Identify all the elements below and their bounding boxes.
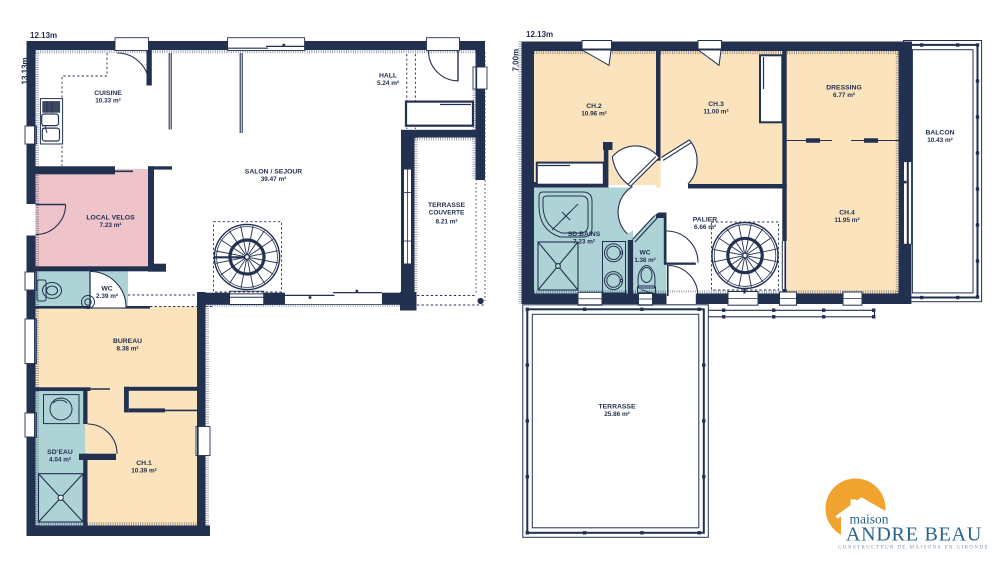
svg-text:ANDRE BEAU: ANDRE BEAU: [846, 524, 982, 546]
svg-text:PALIER: PALIER: [693, 217, 718, 224]
svg-text:7.00m: 7.00m: [512, 49, 521, 72]
svg-text:COUVERTE: COUVERTE: [429, 210, 465, 217]
svg-text:CONSTRUCTEUR DE MAISONS EN GIR: CONSTRUCTEUR DE MAISONS EN GIRONDE: [838, 545, 989, 551]
svg-text:11.95 m²: 11.95 m²: [834, 217, 859, 224]
svg-text:WC: WC: [101, 286, 112, 293]
svg-text:4.04 m²: 4.04 m²: [49, 457, 71, 464]
svg-text:12.13m: 12.13m: [30, 31, 57, 40]
svg-text:7.23 m²: 7.23 m²: [99, 222, 121, 229]
svg-text:DRESSING: DRESSING: [826, 85, 862, 92]
svg-text:CH.3: CH.3: [708, 101, 724, 108]
svg-text:HALL: HALL: [379, 73, 397, 80]
svg-text:WC: WC: [640, 250, 651, 257]
svg-text:10.39 m²: 10.39 m²: [131, 468, 157, 475]
svg-text:6.66 m²: 6.66 m²: [694, 224, 716, 231]
svg-text:5.24 m²: 5.24 m²: [377, 80, 399, 87]
svg-text:6.77 m²: 6.77 m²: [833, 92, 855, 99]
svg-text:13.13m: 13.13m: [21, 57, 30, 84]
svg-text:TERRASSE: TERRASSE: [598, 404, 635, 411]
svg-text:LOCAL VELOS: LOCAL VELOS: [86, 215, 135, 222]
svg-text:BUREAU: BUREAU: [113, 338, 142, 345]
svg-text:SALON / SEJOUR: SALON / SEJOUR: [245, 169, 302, 176]
svg-text:10.43 m²: 10.43 m²: [927, 137, 953, 144]
svg-text:10.33 m²: 10.33 m²: [95, 98, 121, 105]
svg-text:CH.1: CH.1: [136, 460, 152, 467]
svg-text:SD.BAINS: SD.BAINS: [568, 231, 601, 238]
svg-text:CUISINE: CUISINE: [94, 90, 122, 97]
svg-text:11.00 m²: 11.00 m²: [703, 109, 728, 116]
svg-text:BALCON: BALCON: [925, 130, 954, 137]
svg-text:25.86 m²: 25.86 m²: [604, 411, 630, 418]
svg-text:CH.4: CH.4: [839, 210, 855, 217]
svg-text:8.38 m²: 8.38 m²: [116, 346, 138, 353]
svg-text:1.38 m²: 1.38 m²: [634, 257, 655, 264]
svg-text:TERRASSE: TERRASSE: [428, 202, 465, 209]
svg-text:12.13m: 12.13m: [526, 30, 553, 39]
svg-text:2.39 m²: 2.39 m²: [96, 293, 118, 300]
svg-text:CH.2: CH.2: [586, 103, 602, 110]
svg-text:39.47 m²: 39.47 m²: [261, 176, 287, 183]
svg-text:7.23 m²: 7.23 m²: [573, 239, 595, 246]
svg-text:SD’EAU: SD’EAU: [47, 449, 73, 456]
svg-text:10.96 m²: 10.96 m²: [581, 111, 607, 118]
svg-text:8.21 m²: 8.21 m²: [435, 219, 457, 226]
